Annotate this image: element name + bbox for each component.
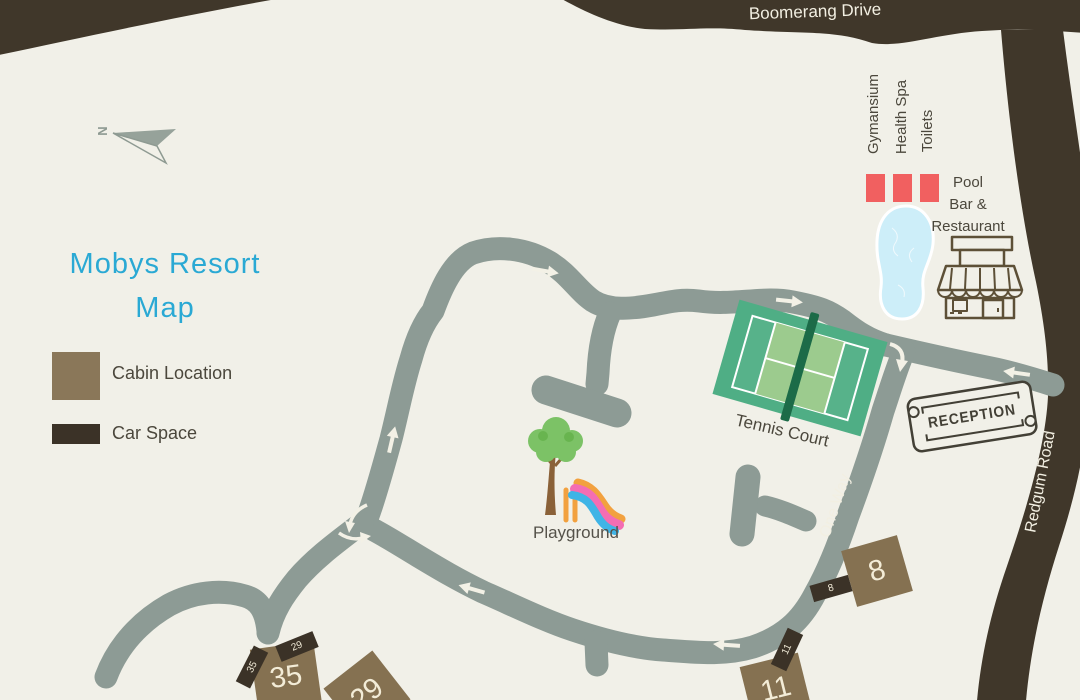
pool-label-line1: Pool <box>928 172 1008 194</box>
central-spur-bay <box>546 390 617 413</box>
cabin-11-number: 11 <box>757 669 794 700</box>
gymnasium-marker <box>866 174 885 202</box>
compass-north-label: N <box>95 123 111 139</box>
east-spur-bay <box>742 477 748 534</box>
playground-label: Playground <box>516 523 636 543</box>
central-spur-road <box>597 313 610 384</box>
legend-car-swatch <box>52 424 100 444</box>
restaurant-storefront-icon <box>938 237 1022 318</box>
cabin-35-number: 35 <box>268 658 305 695</box>
playground-icon <box>528 417 621 531</box>
toilets-label: Toilets <box>919 81 937 181</box>
boomerang-drive-road <box>0 0 1080 56</box>
title-line1: Mobys Resort <box>40 242 290 286</box>
map-graphics <box>0 0 1080 700</box>
health-spa-marker <box>893 174 912 202</box>
cabin-8-number: 8 <box>865 553 890 589</box>
east-spur-road <box>765 506 806 521</box>
cabin-29-number: 29 <box>344 671 390 700</box>
pool <box>877 206 933 319</box>
legend-cabin-label: Cabin Location <box>112 363 232 384</box>
pool-label-line3: Restaurant <box>928 216 1008 238</box>
direction-arrows <box>339 263 1031 652</box>
health-spa-label: Health Spa <box>893 67 911 167</box>
car-space-8-number: 8 <box>827 582 835 594</box>
pool-bar-restaurant-label: Pool Bar & Restaurant <box>928 172 1008 238</box>
resort-map: Mobys Resort Map N Cabin Location Car Sp… <box>0 0 1080 700</box>
legend-cabin-swatch <box>52 352 100 400</box>
junction-branch-road <box>268 523 362 633</box>
gymnasium-label: Gymansium <box>865 64 883 164</box>
car-space-11-number: 11 <box>780 642 794 656</box>
car-space-35-number: 35 <box>245 660 260 675</box>
south-stub-road <box>596 642 597 665</box>
pool-label-line2: Bar & <box>928 194 1008 216</box>
north-arrow-icon <box>113 129 176 163</box>
car-space-29-number: 29 <box>290 639 304 653</box>
legend-car-label: Car Space <box>112 423 197 444</box>
title-line2: Map <box>40 286 290 330</box>
page-title: Mobys Resort Map <box>40 242 290 330</box>
tree-canopy <box>528 417 583 462</box>
